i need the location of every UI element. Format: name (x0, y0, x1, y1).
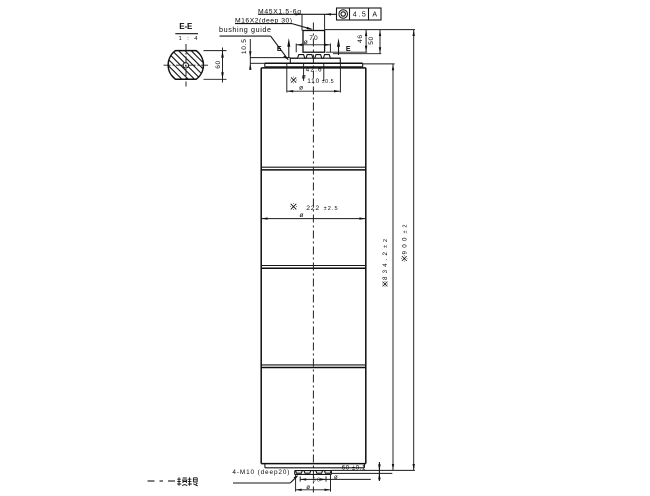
svg-text:50: 50 (368, 36, 375, 44)
svg-text:4.5: 4.5 (353, 12, 366, 19)
svg-text:110: 110 (307, 78, 319, 85)
svg-text:ø: ø (306, 484, 310, 491)
svg-text:E: E (277, 46, 282, 53)
svg-text:ø: ø (299, 212, 303, 219)
svg-text:222: 222 (306, 205, 319, 212)
svg-text:±0.5: ±0.5 (322, 79, 334, 85)
svg-text:ø: ø (299, 85, 303, 92)
svg-text:900: 900 (401, 237, 408, 255)
svg-text:bushing guide: bushing guide (219, 25, 271, 34)
svg-text:4-M10 (deep20): 4-M10 (deep20) (232, 469, 289, 476)
svg-text:60: 60 (215, 60, 222, 68)
svg-text:ø: ø (302, 73, 306, 80)
svg-text:46: 46 (357, 35, 364, 43)
svg-text:±2.5: ±2.5 (324, 206, 338, 212)
svg-text:A: A (372, 12, 377, 19)
svg-text:10.5: 10.5 (241, 39, 248, 54)
svg-text:ø: ø (334, 475, 338, 481)
svg-text:1 : 4: 1 : 4 (179, 36, 199, 42)
svg-text:60: 60 (313, 477, 321, 483)
svg-text:E-E: E-E (179, 22, 193, 31)
